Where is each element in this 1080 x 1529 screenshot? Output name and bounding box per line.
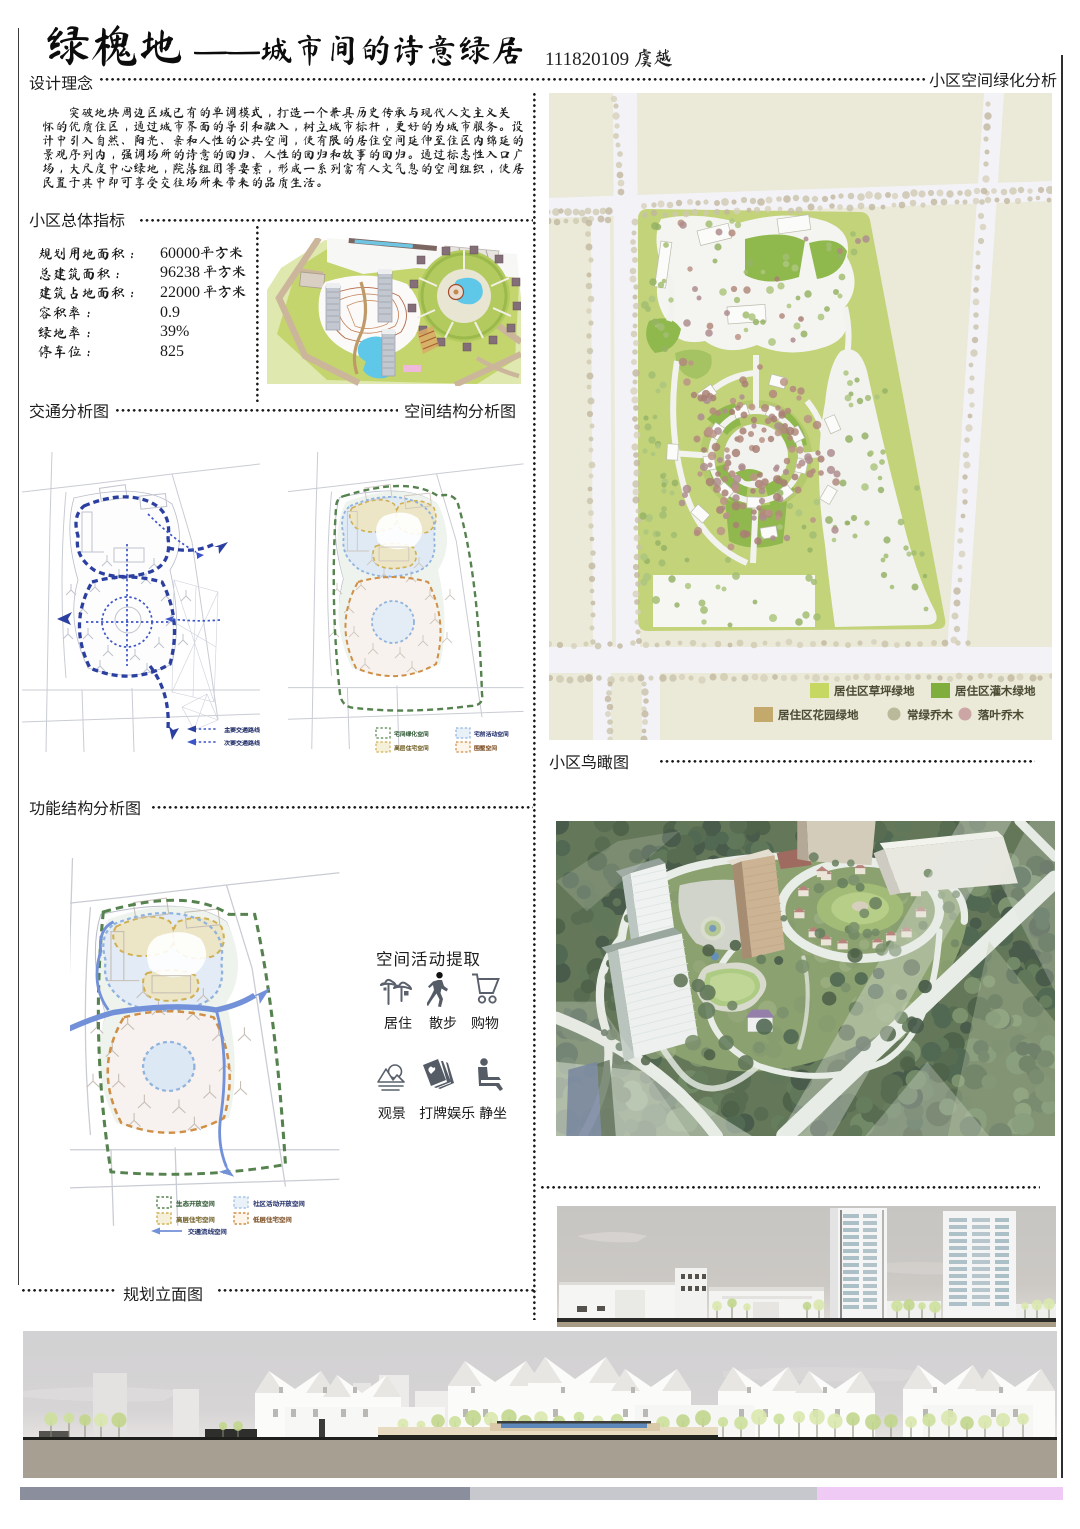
svg-text:落叶乔木: 落叶乔木 [977,707,1024,723]
svg-text:主要交通路线: 主要交通路线 [223,725,260,734]
svg-text:宅前活动空间: 宅前活动空间 [474,729,509,738]
svg-text:高层住宅空间: 高层住宅空间 [393,743,429,752]
svg-text:生态开放空间: 生态开放空间 [176,1198,216,1208]
svg-text:次要交通路线: 次要交通路线 [223,738,260,747]
svg-text:居住区草坪绿地: 居住区草坪绿地 [833,683,915,699]
svg-text:宅间绿化空间: 宅间绿化空间 [394,729,429,738]
svg-text:常绿乔木: 常绿乔木 [907,707,953,723]
svg-text:社区活动开放空间: 社区活动开放空间 [252,1198,306,1208]
svg-text:高层住宅空间: 高层住宅空间 [176,1214,216,1224]
svg-text:低层住宅空间: 低层住宅空间 [252,1214,293,1224]
svg-text:居住区灌木绿地: 居住区灌木绿地 [954,683,1036,699]
svg-text:围墅空间: 围墅空间 [474,743,497,752]
svg-text:交通流线空间: 交通流线空间 [187,1226,228,1236]
svg-text:居住区花园绿地: 居住区花园绿地 [777,707,859,723]
